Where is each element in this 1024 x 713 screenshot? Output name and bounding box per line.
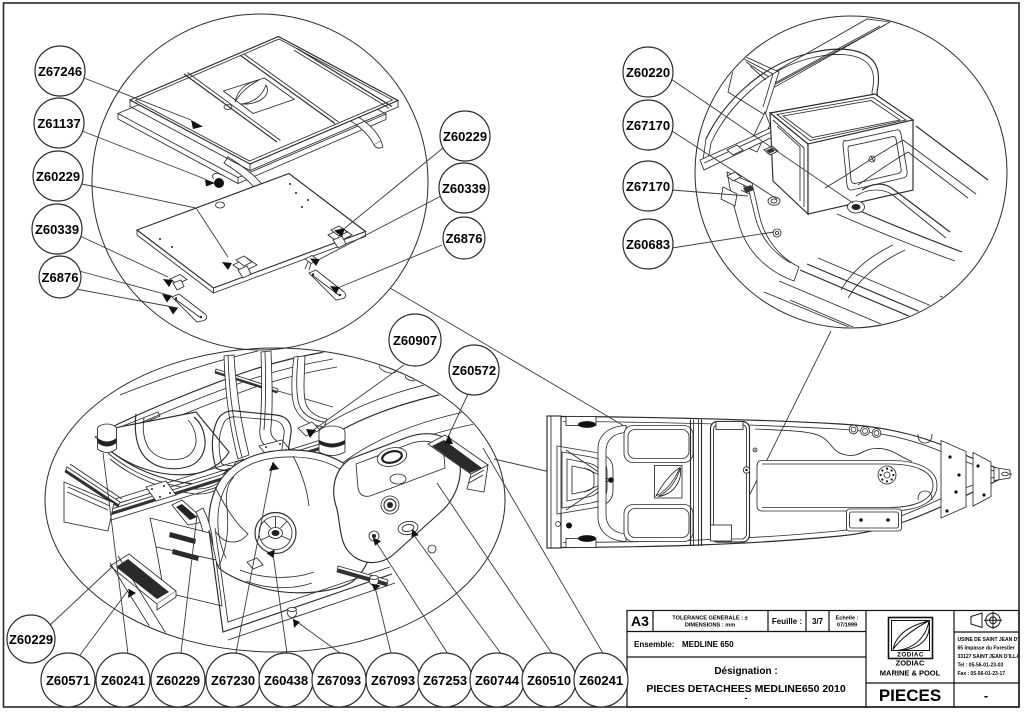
svg-text:Z60229: Z60229 (9, 632, 53, 647)
svg-text:Tel : 05-56-01-23-03: Tel : 05-56-01-23-03 (958, 663, 1004, 669)
svg-text:Z60683: Z60683 (626, 237, 670, 252)
svg-text:A3: A3 (631, 613, 649, 629)
svg-text:-: - (984, 688, 988, 703)
svg-text:Z60510: Z60510 (527, 673, 571, 688)
svg-text:ZODIAC: ZODIAC (896, 659, 925, 668)
svg-text:Feuille :: Feuille : (772, 617, 802, 626)
svg-text:33127 SAINT JEAN D'ILLAC: 33127 SAINT JEAN D'ILLAC (958, 654, 1024, 660)
svg-text:Z60339: Z60339 (35, 222, 79, 237)
svg-text:Ensemble:: Ensemble: (634, 640, 674, 649)
svg-text:Z60229: Z60229 (443, 129, 487, 144)
svg-text:DIMENSIONS : mm: DIMENSIONS : mm (685, 623, 735, 629)
svg-text:Z60572: Z60572 (452, 363, 496, 378)
svg-text:Z67170: Z67170 (626, 118, 670, 133)
svg-text:Z60438: Z60438 (264, 673, 308, 688)
svg-text:MEDLINE 650: MEDLINE 650 (682, 640, 734, 649)
svg-text:3/7: 3/7 (812, 617, 824, 626)
svg-text:Z6876: Z6876 (446, 231, 483, 246)
svg-text:Z67170: Z67170 (626, 179, 670, 194)
svg-text:Z67230: Z67230 (211, 673, 255, 688)
svg-text:07/1999: 07/1999 (837, 623, 857, 629)
svg-text:Z6876: Z6876 (42, 270, 79, 285)
svg-text:Z60339: Z60339 (442, 181, 486, 196)
svg-text:ZODIAC: ZODIAC (897, 652, 924, 659)
svg-text:65 Impasse du Forestier: 65 Impasse du Forestier (958, 646, 1015, 652)
svg-text:Z67246: Z67246 (38, 64, 82, 79)
svg-text:Echelle :: Echelle : (835, 616, 858, 622)
svg-text:Désignation :: Désignation : (714, 666, 777, 677)
svg-text:-: - (745, 693, 748, 703)
svg-text:Z60907: Z60907 (393, 333, 437, 348)
svg-text:PIECES: PIECES (879, 686, 941, 705)
svg-text:Z60571: Z60571 (46, 673, 90, 688)
svg-text:Z60744: Z60744 (475, 673, 520, 688)
svg-text:Fax : 05-56-01-23-17: Fax : 05-56-01-23-17 (958, 671, 1006, 677)
svg-text:USINE DE SAINT JEAN D'ILLAC: USINE DE SAINT JEAN D'ILLAC (958, 637, 1024, 643)
svg-text:Z60241: Z60241 (579, 673, 623, 688)
svg-text:Z67093: Z67093 (371, 673, 415, 688)
svg-text:Z60241: Z60241 (101, 673, 145, 688)
svg-text:Z60229: Z60229 (156, 673, 200, 688)
svg-text:Z60229: Z60229 (36, 169, 80, 184)
svg-text:Z67093: Z67093 (317, 673, 361, 688)
svg-text:Z61137: Z61137 (37, 116, 80, 131)
svg-text:MARINE & POOL: MARINE & POOL (880, 669, 941, 678)
svg-text:Z60220: Z60220 (626, 65, 670, 80)
svg-text:TOLERANCE GENERALE : ±: TOLERANCE GENERALE : ± (672, 616, 747, 622)
svg-text:Z67253: Z67253 (423, 673, 467, 688)
